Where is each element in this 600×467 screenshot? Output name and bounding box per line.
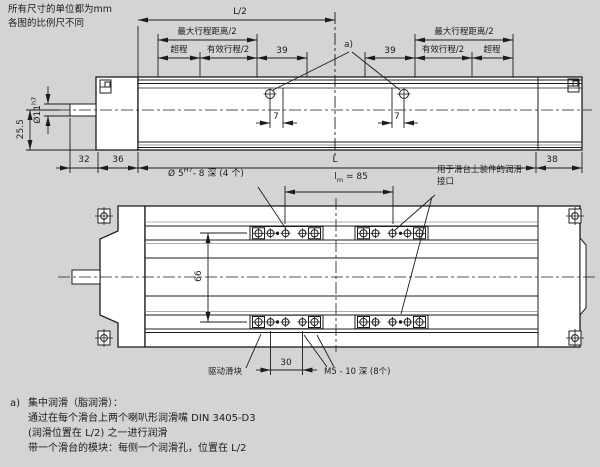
hole-strip-bottom-right: [355, 315, 428, 329]
footnote-line2: 通过在每个滑台上两个喇叭形润滑嘴 DIN 3405-D3: [28, 413, 256, 425]
plan-view-body: [58, 198, 595, 352]
dim-39-left: 39: [262, 46, 302, 56]
label-lm-85: lm = 85: [320, 172, 382, 183]
units-note-line1: 所有尺寸的单位都为mm: [8, 5, 112, 16]
units-note-line2: 各图的比例尺不同: [8, 19, 84, 30]
footnote-line1: 集中润滑（脂润滑）：: [28, 398, 123, 410]
dim-max-travel-left: 最大行程距离/2: [157, 28, 257, 38]
linear-module-drawing: 所有尺寸的单位都为mm 各图的比例尺不同 L/2 最大行程距离/2 最大行程距离…: [0, 0, 600, 467]
dim-effective-left: 有效行程/2: [188, 46, 268, 56]
label-lube-port-line1: 用于滑台上装件的润滑: [437, 166, 522, 176]
dim-height-25-5: 25.5: [16, 109, 26, 149]
plan-right-edge-step: [580, 238, 586, 315]
hole-strip-bottom-left: [250, 315, 323, 329]
side-view-body: [58, 77, 592, 150]
plan-view: [58, 186, 595, 375]
dim-shaft-diameter: Ø11h7: [31, 90, 43, 130]
hole-strip-top-left: [250, 227, 323, 241]
footnote-line4: 带一个滑台的模块：每侧一个润滑孔，位置在 L/2: [28, 443, 246, 455]
dim-7-left: 7: [266, 112, 286, 122]
dim-l-half: L/2: [195, 7, 285, 17]
footnote-line3: (润滑位置在 L/2) 之一进行润滑: [28, 428, 167, 440]
dim-36: 36: [98, 155, 138, 165]
label-m5-holes: M5 - 10 深 (8个): [324, 368, 390, 378]
footnote-marker: a): [10, 398, 20, 410]
callout-a-label: a): [344, 40, 353, 50]
dim-30: 30: [266, 358, 306, 368]
dim-L: L: [315, 155, 355, 165]
label-lube-port-line2: 接口: [437, 178, 454, 188]
dim-overtravel-right: 超程: [462, 46, 522, 56]
plan-left-end-cap: [100, 206, 145, 347]
drawing-line-art: [0, 0, 600, 467]
dim-7-right: 7: [387, 112, 407, 122]
hole-strip-top-right: [355, 227, 428, 241]
dim-38: 38: [532, 155, 572, 165]
label-drive-block: 驱动滑块: [208, 368, 242, 378]
dim-max-travel-right: 最大行程距离/2: [414, 28, 514, 38]
dim-66: 66: [194, 256, 204, 296]
label-dowel-holes: Ø 5H7- 8 深 (4 个): [168, 167, 244, 179]
